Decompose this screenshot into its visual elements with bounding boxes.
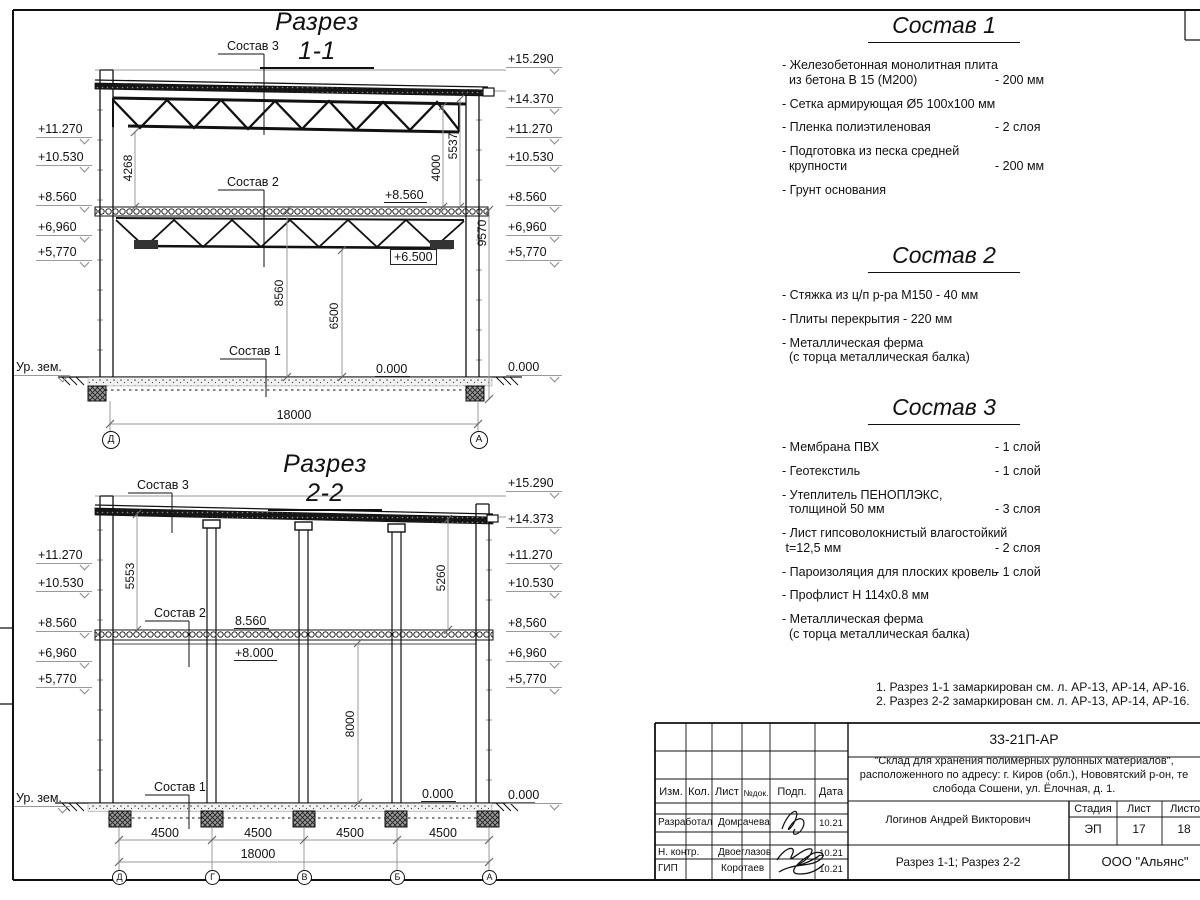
elevation-mark: +14.373 (506, 512, 562, 528)
axis-bubble: Г (205, 870, 220, 885)
dimension: 4000 (429, 146, 443, 190)
level-label-slab-s22: 8.560 (234, 614, 269, 629)
list-item: - Стяжка из ц/п р-ра М150 - 40 мм (782, 288, 1182, 303)
elevation-mark: +11.270 (36, 122, 92, 138)
dimension: 8000 (343, 702, 357, 746)
stamp-role-gip: ГИП (658, 863, 678, 874)
stamp-content-title: Разрез 1-1; Разрез 2-2 (896, 855, 1021, 869)
list-item: - Лист гипсоволокнистый влагостойкий t=1… (782, 526, 1182, 556)
elevation-mark: +8,560 (506, 616, 562, 632)
axis-bubble: В (297, 870, 312, 885)
stamp-col-data: Дата (819, 786, 843, 798)
elevation-mark: +10.530 (36, 576, 92, 592)
stamp-col-kol: Кол. (688, 786, 710, 798)
stamp-author: Логинов Андрей Викторович (885, 814, 1030, 826)
dimension: 4268 (121, 146, 135, 190)
elevation-mark: +11.270 (506, 122, 562, 138)
axis-bubble: Д (102, 431, 120, 449)
dimension: 5553 (123, 554, 137, 598)
dimension: 8560 (272, 271, 286, 315)
list-item: - Металлическая ферма (с торца металличе… (782, 612, 1182, 642)
stamp-company: ООО "Альянс" (1102, 854, 1189, 869)
elevation-mark: +8.560 (506, 190, 562, 206)
elevation-mark: +10.530 (36, 150, 92, 166)
elevation-mark: +6,960 (36, 220, 92, 236)
composition-title: Состав 2 (868, 242, 1020, 273)
stamp-name-developer: Домрачева (718, 817, 770, 828)
stamp-sheet-label: Лист (1127, 803, 1151, 815)
level-label-slab-s11: +8.560 (384, 188, 427, 203)
elevation-mark: +15.290 (506, 52, 562, 68)
axis-bubble: Д (112, 870, 127, 885)
stamp-col-podp: Подп. (777, 786, 806, 798)
list-item: - Железобетонная монолитная плита из бет… (782, 58, 1182, 88)
stamp-project-line2: расположенного по адресу: г. Киров (обл.… (860, 769, 1188, 781)
list-item: - Подготовка из песка средней крупности-… (782, 144, 1182, 174)
composition-block-3: Состав 3 - Мембрана ПВХ- 1 слой - Геотек… (782, 394, 1182, 651)
signature-approvers (777, 848, 824, 874)
elevation-mark: +8.560 (36, 616, 92, 632)
elevation-mark: +15.290 (506, 476, 562, 492)
leader-sostav1-s11: Состав 1 (229, 344, 281, 358)
elevation-mark: 0.000 (506, 788, 562, 804)
stamp-role-developer: Разработал (658, 817, 712, 828)
elevation-mark: 0.000 (506, 360, 562, 376)
list-item: - Плиты перекрытия - 220 мм (782, 312, 1182, 327)
stamp-sheets-value: 18 (1177, 822, 1190, 836)
stamp-project-line3: слобода Сошени, ул. Ёлочная, д. 1. (933, 783, 1116, 795)
ground-level-label: Ур. зем. (14, 791, 70, 807)
axis-bubble: А (482, 870, 497, 885)
elevation-mark: +11.270 (506, 548, 562, 564)
list-item: - Грунт основания (782, 183, 1182, 198)
leader-sostav2-s22: Состав 2 (154, 606, 206, 620)
composition-block-2: Состав 2 - Стяжка из ц/п р-ра М150 - 40 … (782, 242, 1182, 374)
elevation-mark: +8.560 (36, 190, 92, 206)
elevation-mark: +5,770 (36, 672, 92, 688)
note-line-2: 2. Разрез 2-2 замаркирован см. л. АР-13,… (876, 694, 1190, 708)
list-item: - Мембрана ПВХ- 1 слой (782, 440, 1182, 455)
level-label-floor-s11: 0.000 (375, 362, 410, 377)
signature-domracheva (782, 811, 804, 834)
leader-sostav1-s22: Состав 1 (154, 780, 206, 794)
dimension: 5260 (434, 556, 448, 600)
dimension: 4500 (238, 826, 278, 840)
composition-block-1: Состав 1 - Железобетонная монолитная пли… (782, 12, 1182, 206)
stamp-stage-label: Стадия (1074, 803, 1112, 815)
list-item: - Профлист Н 114х0.8 мм (782, 588, 1182, 603)
stamp-role-ncontrol: Н. контр. (658, 847, 699, 858)
elevation-mark: +5,770 (506, 245, 562, 261)
dimension: 4500 (423, 826, 463, 840)
stamp-stage-value: ЭП (1084, 822, 1101, 836)
level-label-slab2-s22: +8.000 (234, 646, 277, 661)
section-2-2-title: Разрез 2-2 (268, 450, 382, 511)
dimension: 9570 (475, 211, 489, 255)
list-item: - Утеплитель ПЕНОПЛЭКС, толщиной 50 мм- … (782, 488, 1182, 518)
leader-sostav3-s22: Состав 3 (137, 478, 189, 492)
list-item: - Пароизоляция для плоских кровель- 1 сл… (782, 565, 1182, 580)
elevation-mark: +14.370 (506, 92, 562, 108)
leader-sostav3-s11: Состав 3 (227, 39, 279, 53)
list-item: - Металлическая ферма (с торца металличе… (782, 336, 1182, 366)
elevation-mark: +5,770 (36, 245, 92, 261)
dimension: 5537 (446, 124, 460, 168)
drawing-sheet: Разрез 1-1 Разрез 2-2 Состав 3 Состав 2 … (0, 0, 1200, 900)
elevation-mark: +10.530 (506, 150, 562, 166)
list-item: - Пленка полиэтиленовая- 2 слоя (782, 120, 1182, 135)
stamp-date: 10.21 (819, 848, 843, 859)
list-item: - Сетка армирующая Ø5 100х100 мм (782, 97, 1182, 112)
axis-bubble: А (470, 431, 488, 449)
level-label-floor-s22: 0.000 (421, 787, 456, 802)
stamp-sheets-label: Листов (1170, 803, 1200, 815)
elevation-mark: +6,960 (506, 646, 562, 662)
dimension: 6500 (327, 294, 341, 338)
stamp-col-list: Лист (715, 786, 739, 798)
dimension-total: 18000 (228, 847, 288, 861)
stamp-sheet-value: 17 (1132, 822, 1145, 836)
elevation-mark: +5,770 (506, 672, 562, 688)
stamp-project-line1: "Склад для хранения полимерных рулонных … (874, 755, 1173, 767)
stamp-col-ndok: №док. (744, 788, 769, 798)
dimension: 4500 (330, 826, 370, 840)
composition-title: Состав 1 (868, 12, 1020, 43)
stamp-date: 10.21 (819, 864, 843, 875)
elevation-mark: +11.270 (36, 548, 92, 564)
elevation-mark: +10.530 (506, 576, 562, 592)
note-line-1: 1. Разрез 1-1 замаркирован см. л. АР-13,… (876, 680, 1190, 694)
elevation-mark: +6,960 (506, 220, 562, 236)
list-item: - Геотекстиль- 1 слой (782, 464, 1182, 479)
stamp-name-ncontrol: Двоеглазов (718, 847, 771, 858)
composition-title: Состав 3 (868, 394, 1020, 425)
stamp-col-izm: Изм. (659, 786, 683, 798)
level-label-truss-s11: +6.500 (390, 249, 437, 265)
elevation-mark: +6,960 (36, 646, 92, 662)
ground-level-label: Ур. зем. (14, 360, 70, 376)
dimension-total: 18000 (264, 408, 324, 422)
leader-sostav2-s11: Состав 2 (227, 175, 279, 189)
stamp-doc-number: 33-21П-АР (989, 731, 1058, 747)
stamp-date: 10.21 (819, 818, 843, 829)
dimension: 4500 (145, 826, 185, 840)
stamp-name-gip: Коротаев (721, 863, 764, 874)
axis-bubble: Б (390, 870, 405, 885)
